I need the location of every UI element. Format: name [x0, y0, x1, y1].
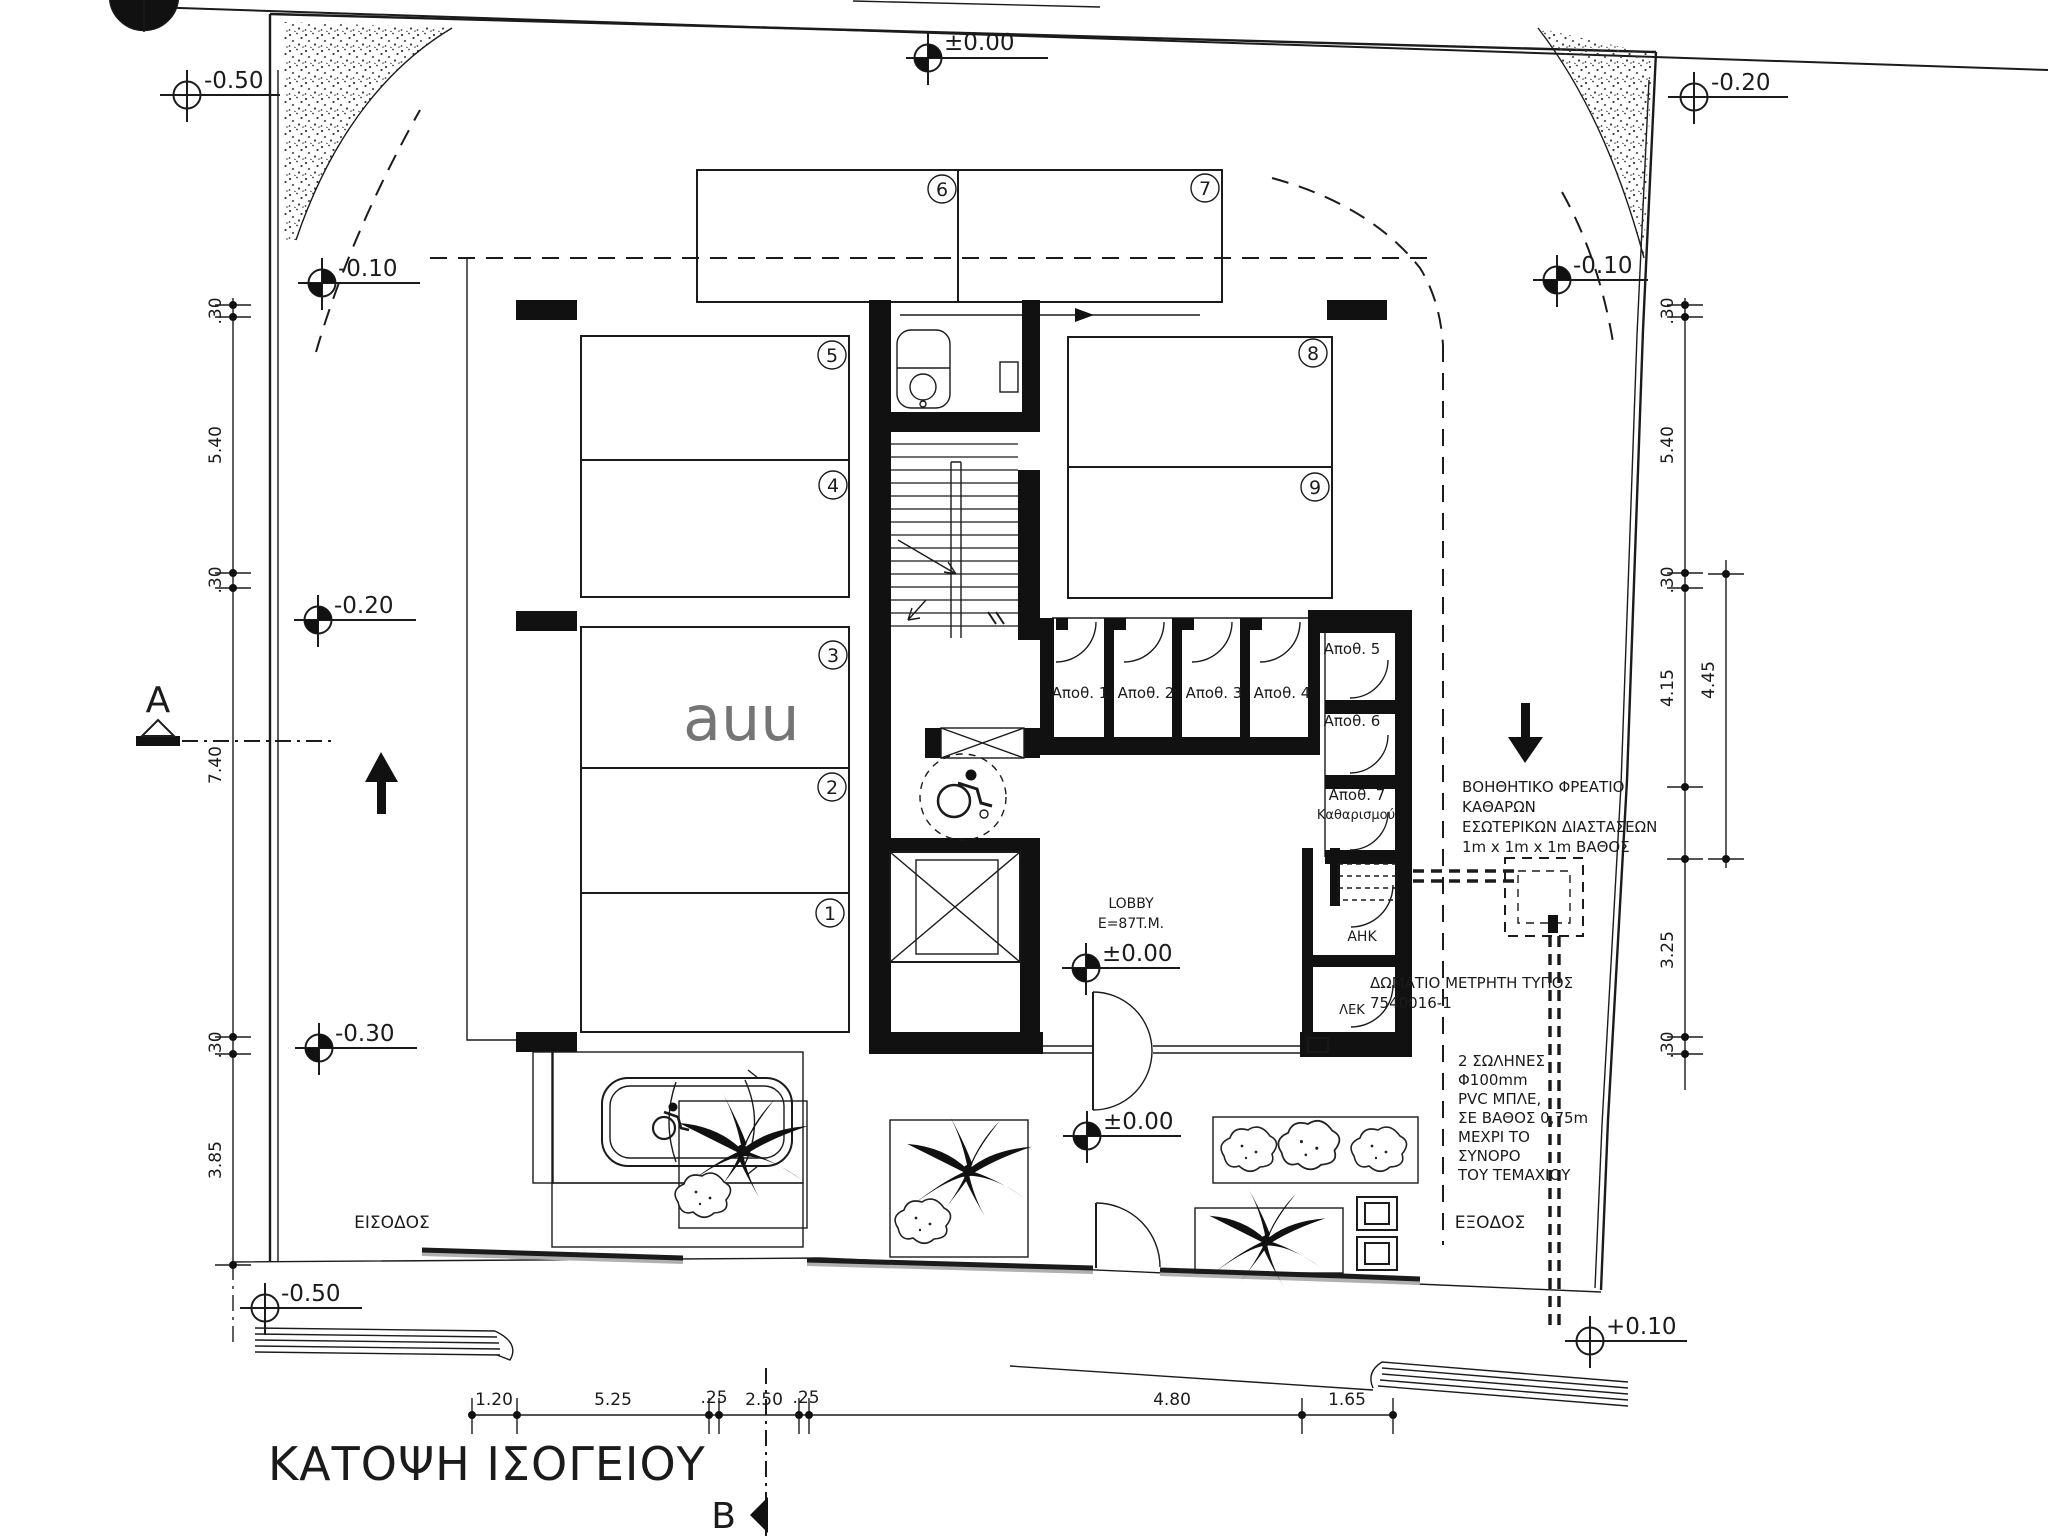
level-marker-left-mid: -0.20 [294, 593, 416, 647]
dimension-chain-bottom: 1.20 5.25 .25 2.50 .25 4.80 1.65 [468, 1388, 1397, 1434]
lobby-label: LOBBY [1108, 896, 1154, 912]
level-marker-bottom-left: -0.50 [240, 1281, 362, 1335]
duct-shaft [925, 728, 1040, 758]
ahk-door-arc [1351, 885, 1393, 927]
stall-number-9: 9 [1309, 477, 1321, 499]
dim-left-540: 5.40 [206, 426, 226, 464]
wall-stub [516, 611, 577, 631]
exit-label: ΕΞΟΔΟΣ [1455, 1213, 1526, 1233]
dim-bottom-480: 4.80 [1153, 1390, 1191, 1410]
direction-arrow-down [1508, 703, 1543, 763]
dim-bottom-165: 1.65 [1328, 1390, 1366, 1410]
level-value: -0.30 [335, 1021, 395, 1047]
level-value: ±0.00 [944, 30, 1014, 56]
wall-stub [1327, 300, 1387, 320]
core-wall-south [869, 1032, 1043, 1054]
curb-line-exit [1010, 1366, 1373, 1390]
stall-number-6: 6 [936, 179, 948, 201]
road-marking-top [853, 1, 1100, 7]
section-b-label: B [711, 1496, 736, 1536]
dim-left-30c: .30 [206, 1031, 226, 1058]
accessible-parking [533, 1052, 803, 1247]
pipes-vertical [1550, 936, 1559, 1328]
dim-right-445: 4.45 [1699, 661, 1719, 699]
pipes-horizontal [1413, 871, 1516, 881]
wheelchair-icon [938, 770, 992, 819]
dim-left-740: 7.40 [206, 746, 226, 784]
stair-rail [951, 462, 961, 638]
meter-room-wall [1300, 1032, 1412, 1057]
level-value: -0.50 [281, 1281, 341, 1307]
level-value: -0.20 [334, 593, 394, 619]
stall-number-7: 7 [1199, 178, 1211, 200]
pipe-note-line1: 2 ΣΩΛΗΝΕΣ [1458, 1052, 1545, 1070]
level-marker-lobby: ±0.00 [1062, 941, 1180, 995]
dim-bottom-25b: .25 [792, 1388, 819, 1408]
stair-wall-east [1018, 470, 1040, 640]
utility-manholes [1357, 1197, 1397, 1270]
storage-label-2: Αποθ. 2 [1118, 684, 1175, 702]
sidewalk-band-left [255, 1328, 513, 1360]
core-wall-west [869, 300, 891, 1045]
stair-up-arrow [898, 540, 956, 574]
staircase [891, 444, 1018, 638]
parking-box-5-4 [581, 336, 849, 597]
level-marker-left-lower: -0.30 [295, 1021, 417, 1075]
street [255, 1328, 1628, 1406]
dim-right-30c: .30 [1658, 1031, 1678, 1058]
stipple-wedge-top-left [284, 22, 452, 240]
stair-break-mark [988, 612, 1004, 624]
floor-plan-page: 1 2 3 4 5 6 7 8 9 [0, 0, 2048, 1536]
section-a-label: A [146, 680, 171, 721]
pipe-note-line5: ΜΕΧΡΙ ΤΟ [1458, 1128, 1530, 1146]
accessible-turning-circle [920, 754, 1006, 840]
lift-wall-north [891, 838, 1040, 852]
dim-right-415: 4.15 [1658, 669, 1678, 707]
lobby-north-wall [1035, 737, 1320, 755]
storage-label-3: Αποθ. 3 [1186, 684, 1243, 702]
pit-note-line4: 1m x 1m x 1m ΒΑΘΟΣ [1462, 838, 1630, 856]
level-value: ±0.00 [1103, 1109, 1173, 1135]
level-value: -0.20 [1711, 70, 1771, 96]
dim-right-540: 5.40 [1658, 426, 1678, 464]
bush-icon [675, 1173, 730, 1217]
dim-right-30a: .30 [1658, 297, 1678, 324]
bush-icon [1351, 1127, 1406, 1171]
frontage-wall [422, 1250, 1420, 1279]
pipe-note-line4: ΣΕ ΒΑΘΟΣ 0,75m [1458, 1109, 1588, 1127]
level-marker-entry: ±0.00 [1063, 1109, 1181, 1163]
ahk-room-label: ΑΗΚ [1347, 929, 1377, 945]
level-value: +0.10 [1606, 1314, 1676, 1340]
wall-under-wc [891, 412, 1040, 432]
level-marker-bottom-right: +0.10 [1565, 1314, 1687, 1368]
level-marker-top-left: -0.50 [160, 68, 280, 122]
pipe-note-line6: ΣΥΝΟΡΟ [1458, 1147, 1521, 1165]
dim-bottom-525: 5.25 [594, 1390, 632, 1410]
bush-icon [1278, 1121, 1339, 1170]
isa-wheelchair-icon [653, 1103, 689, 1140]
level-marker-right-upper: -0.10 [1533, 253, 1648, 307]
dim-left-30a: .30 [206, 297, 226, 324]
lobby-glass-front [1043, 1046, 1300, 1053]
frontage: ΕΙΣΟΔΟΣ ΕΞΟΔΟΣ [354, 1090, 1525, 1289]
pit-note-line3: ΕΣΩΤΕΡΙΚΩΝ ΔΙΑΣΤΑΣΕΩΝ [1462, 818, 1657, 836]
parking-stall-numbers: 1 2 3 4 5 6 7 8 9 [816, 174, 1329, 927]
north-compass-icon [96, 0, 192, 32]
pipe-note-line2: Φ100mm [1458, 1071, 1528, 1089]
gate-swing [1096, 1203, 1160, 1267]
level-marker-top-right: -0.20 [1668, 70, 1788, 124]
building-core [869, 300, 1043, 1054]
meter-note-line1: ΔΩΜΑΤΙΟ ΜΕΤΡΗΤΗ ΤΥΠΟΣ [1370, 974, 1573, 992]
pipe-note-line7: ΤΟΥ ΤΕΜΑΧΙΟΥ [1457, 1166, 1571, 1184]
lek-room-label: ΛΕΚ [1339, 1003, 1365, 1018]
storage-label-4: Αποθ. 4 [1254, 684, 1311, 702]
parking-apron-edge [467, 258, 516, 1040]
elevator [890, 852, 1020, 962]
stall-number-4: 4 [827, 475, 839, 497]
pipe-note-line3: PVC ΜΠΛΕ, [1458, 1090, 1541, 1108]
entrance-label: ΕΙΣΟΔΟΣ [354, 1213, 430, 1233]
lift-wall-east [1020, 850, 1040, 1032]
pipe-note: 2 ΣΩΛΗΝΕΣ Φ100mm PVC ΜΠΛΕ, ΣΕ ΒΑΘΟΣ 0,75… [1457, 1052, 1588, 1184]
level-value: -0.10 [1573, 253, 1633, 279]
stall-number-1: 1 [824, 903, 836, 925]
dim-bottom-25a: .25 [700, 1388, 727, 1408]
inspection-pit: ΒΟΗΘΗΤΙΚΟ ΦΡΕΑΤΙΟ ΚΑΘΑΡΩΝ ΕΣΩΤΕΡΙΚΩΝ ΔΙΑ… [1370, 778, 1657, 1328]
dimension-chain-right: .30 5.40 .30 4.15 4.45 3.25 .30 [1658, 297, 1744, 1090]
dim-right-30b: .30 [1658, 566, 1678, 593]
dim-bottom-120: 1.20 [475, 1390, 513, 1410]
direction-arrow-up [365, 752, 398, 814]
lobby-door-swing [1093, 992, 1152, 1110]
level-marker-top: ±0.00 [906, 30, 1048, 85]
boundary-right-outer [1601, 52, 1656, 1290]
dim-right-325: 3.25 [1658, 931, 1678, 969]
stall-number-5: 5 [826, 345, 838, 367]
parking-box-6-7 [697, 170, 1222, 302]
watermark: auu [683, 682, 800, 755]
ahk-equipment [1338, 864, 1397, 900]
storage-label-5: Αποθ. 5 [1324, 640, 1381, 658]
drawing-title: ΚΑΤΟΨΗ ΙΣΟΓΕΙΟΥ [268, 1437, 706, 1491]
lobby-area-label: E=87T.M. [1098, 916, 1164, 932]
wall-stub [516, 300, 577, 320]
driveway-dashed-lines [316, 110, 1614, 1245]
bush-icon [1221, 1127, 1276, 1171]
hatch-strip [533, 1052, 553, 1183]
level-value: -0.10 [338, 256, 398, 282]
level-value: ±0.00 [1102, 941, 1172, 967]
dim-left-385: 3.85 [206, 1141, 226, 1179]
section-marker-a: A [136, 680, 335, 746]
drive-aisle-arrow [900, 308, 1200, 322]
storage-label-1: Αποθ. 1 [1052, 684, 1109, 702]
pit-note-line2: ΚΑΘΑΡΩΝ [1462, 798, 1536, 816]
sidewalk-band-right [1371, 1362, 1628, 1406]
storage-label-7b: Καθαρισμού [1317, 808, 1395, 823]
stall-number-2: 2 [826, 777, 838, 799]
bush-icon [895, 1199, 950, 1243]
storage-rooms: Αποθ. 1 Αποθ. 2 Αποθ. 3 Αποθ. 4 Αποθ. 5 … [1035, 610, 1412, 1057]
stall-number-8: 8 [1307, 343, 1319, 365]
dim-left-30b: .30 [206, 566, 226, 593]
level-marker-left-upper: -0.10 [298, 256, 420, 310]
level-value: -0.50 [204, 68, 264, 94]
dimension-chain-left: .30 5.40 .30 7.40 .30 3.85 [206, 297, 251, 1269]
floor-plan-drawing: 1 2 3 4 5 6 7 8 9 [0, 0, 2048, 1536]
wc-fixture [897, 330, 1018, 408]
wall-stub [516, 1032, 577, 1052]
meter-note-line2: 7540016-1 [1370, 994, 1452, 1012]
storage-label-7: Αποθ. 7 [1329, 786, 1386, 804]
storage-label-6: Αποθ. 6 [1324, 712, 1381, 730]
dim-bottom-250: 2.50 [745, 1390, 783, 1410]
pit-note-line1: ΒΟΗΘΗΤΙΚΟ ΦΡΕΑΤΙΟ [1462, 778, 1624, 796]
stall-number-3: 3 [827, 645, 839, 667]
stair-down-arrow [908, 600, 926, 620]
stipple-wedge-top-right [1538, 28, 1652, 258]
